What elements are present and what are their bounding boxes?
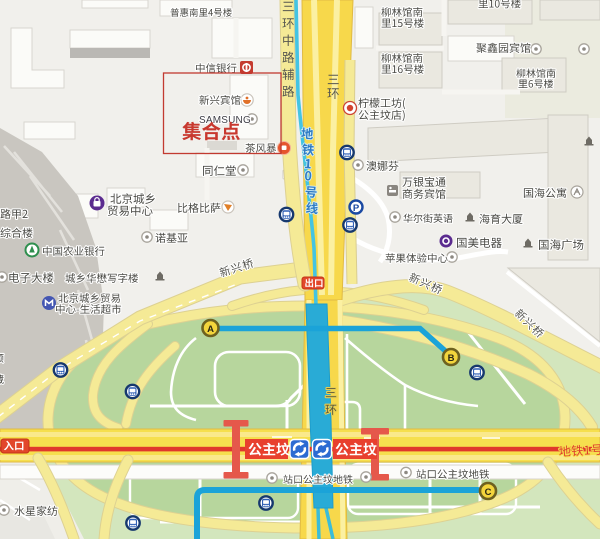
svg-text:SAMSUNG: SAMSUNG [199, 115, 251, 126]
svg-text:C: C [485, 487, 492, 498]
svg-text:B: B [448, 353, 455, 364]
svg-text:A: A [207, 324, 214, 335]
svg-text:P: P [353, 203, 360, 214]
